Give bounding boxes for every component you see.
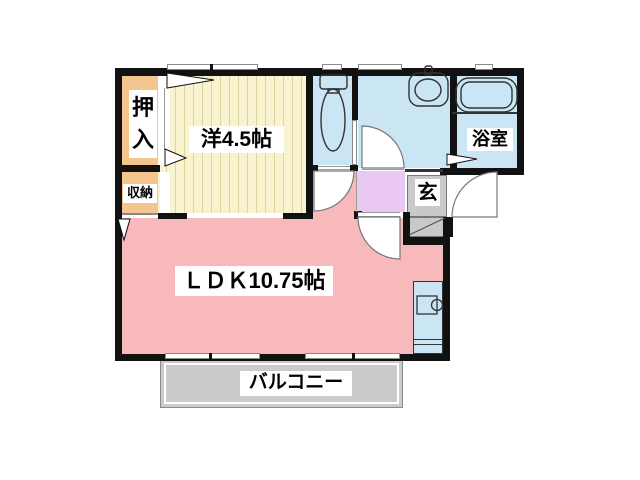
label-balcony: バルコニー	[240, 371, 352, 396]
label-bathroom: 浴室	[467, 128, 513, 151]
fusuma-arrow-icon	[167, 73, 214, 88]
label-ldk: ＬＤＫ10.75帖	[175, 266, 333, 296]
bathroom-door-arrow-icon	[447, 154, 477, 165]
bathtub-icon	[456, 78, 517, 112]
genkan-step-diagonal	[409, 218, 445, 235]
front-door-arc	[452, 172, 497, 217]
toilet-icon	[320, 75, 347, 151]
floor-plan: 押入 収納 洋4.5帖 ＬＤＫ10.75帖 玄 浴室 バルコニー	[0, 0, 640, 480]
kitchen-sink-icon	[417, 296, 443, 314]
shunou-arrow-icon	[118, 219, 130, 240]
toilet-door-arc	[314, 171, 354, 211]
symbol-overlay	[0, 0, 640, 480]
label-genkan: 玄	[415, 179, 440, 206]
label-oshiire: 押入	[129, 90, 157, 158]
washbasin-icon	[409, 66, 448, 106]
ldk-door-arc	[358, 217, 400, 259]
washroom-door-arc	[362, 126, 404, 168]
label-western: 洋4.5帖	[189, 126, 284, 153]
label-shunou: 収納	[123, 184, 157, 203]
fusuma-arrow2-icon	[165, 149, 186, 166]
